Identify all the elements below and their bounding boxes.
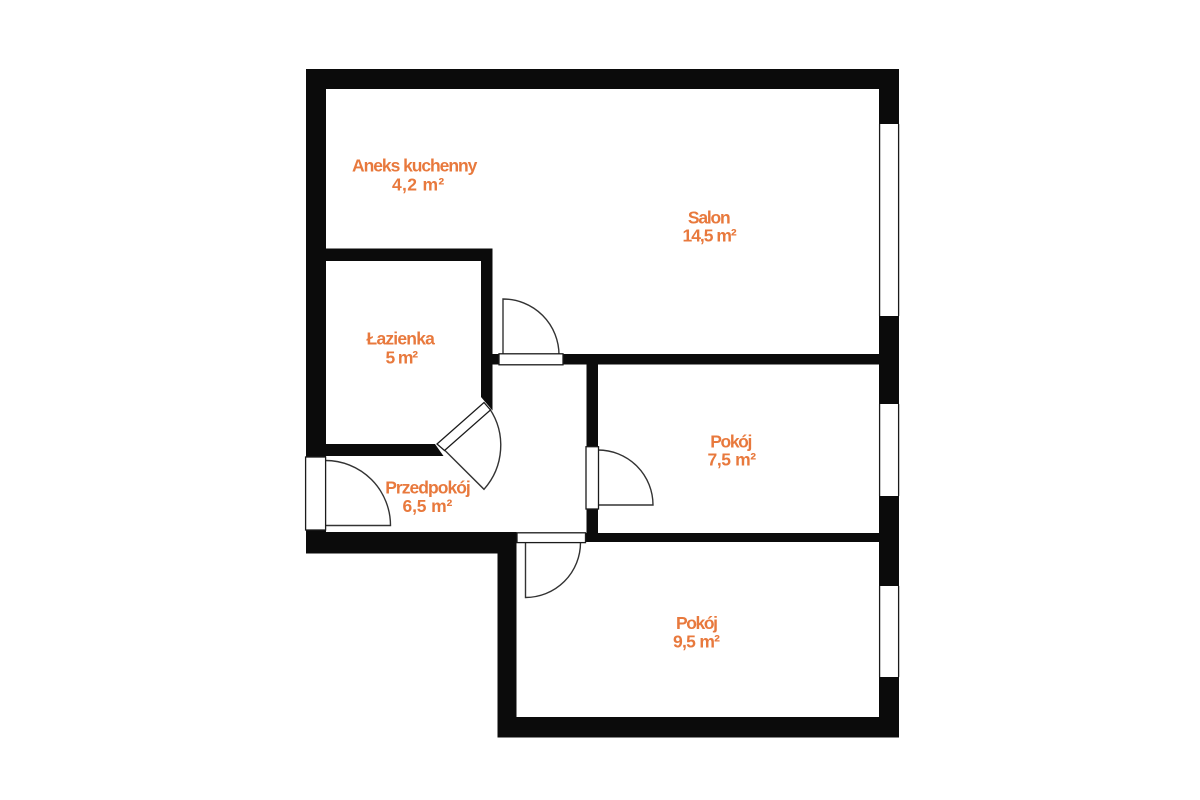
svg-text:Łazienka: Łazienka bbox=[367, 329, 436, 349]
svg-text:Przedpokój: Przedpokój bbox=[385, 478, 471, 498]
svg-text:5 m²: 5 m² bbox=[386, 348, 419, 368]
svg-text:6,5 m²: 6,5 m² bbox=[403, 496, 453, 516]
svg-text:9,5 m²: 9,5 m² bbox=[673, 631, 720, 651]
svg-text:7,5 m²: 7,5 m² bbox=[708, 449, 757, 469]
svg-text:14,5 m²: 14,5 m² bbox=[683, 225, 737, 245]
svg-text:Aneks kuchenny: Aneks kuchenny bbox=[352, 156, 478, 176]
svg-text:Pokój: Pokój bbox=[676, 613, 718, 633]
svg-text:4,2 m²: 4,2 m² bbox=[392, 175, 444, 195]
